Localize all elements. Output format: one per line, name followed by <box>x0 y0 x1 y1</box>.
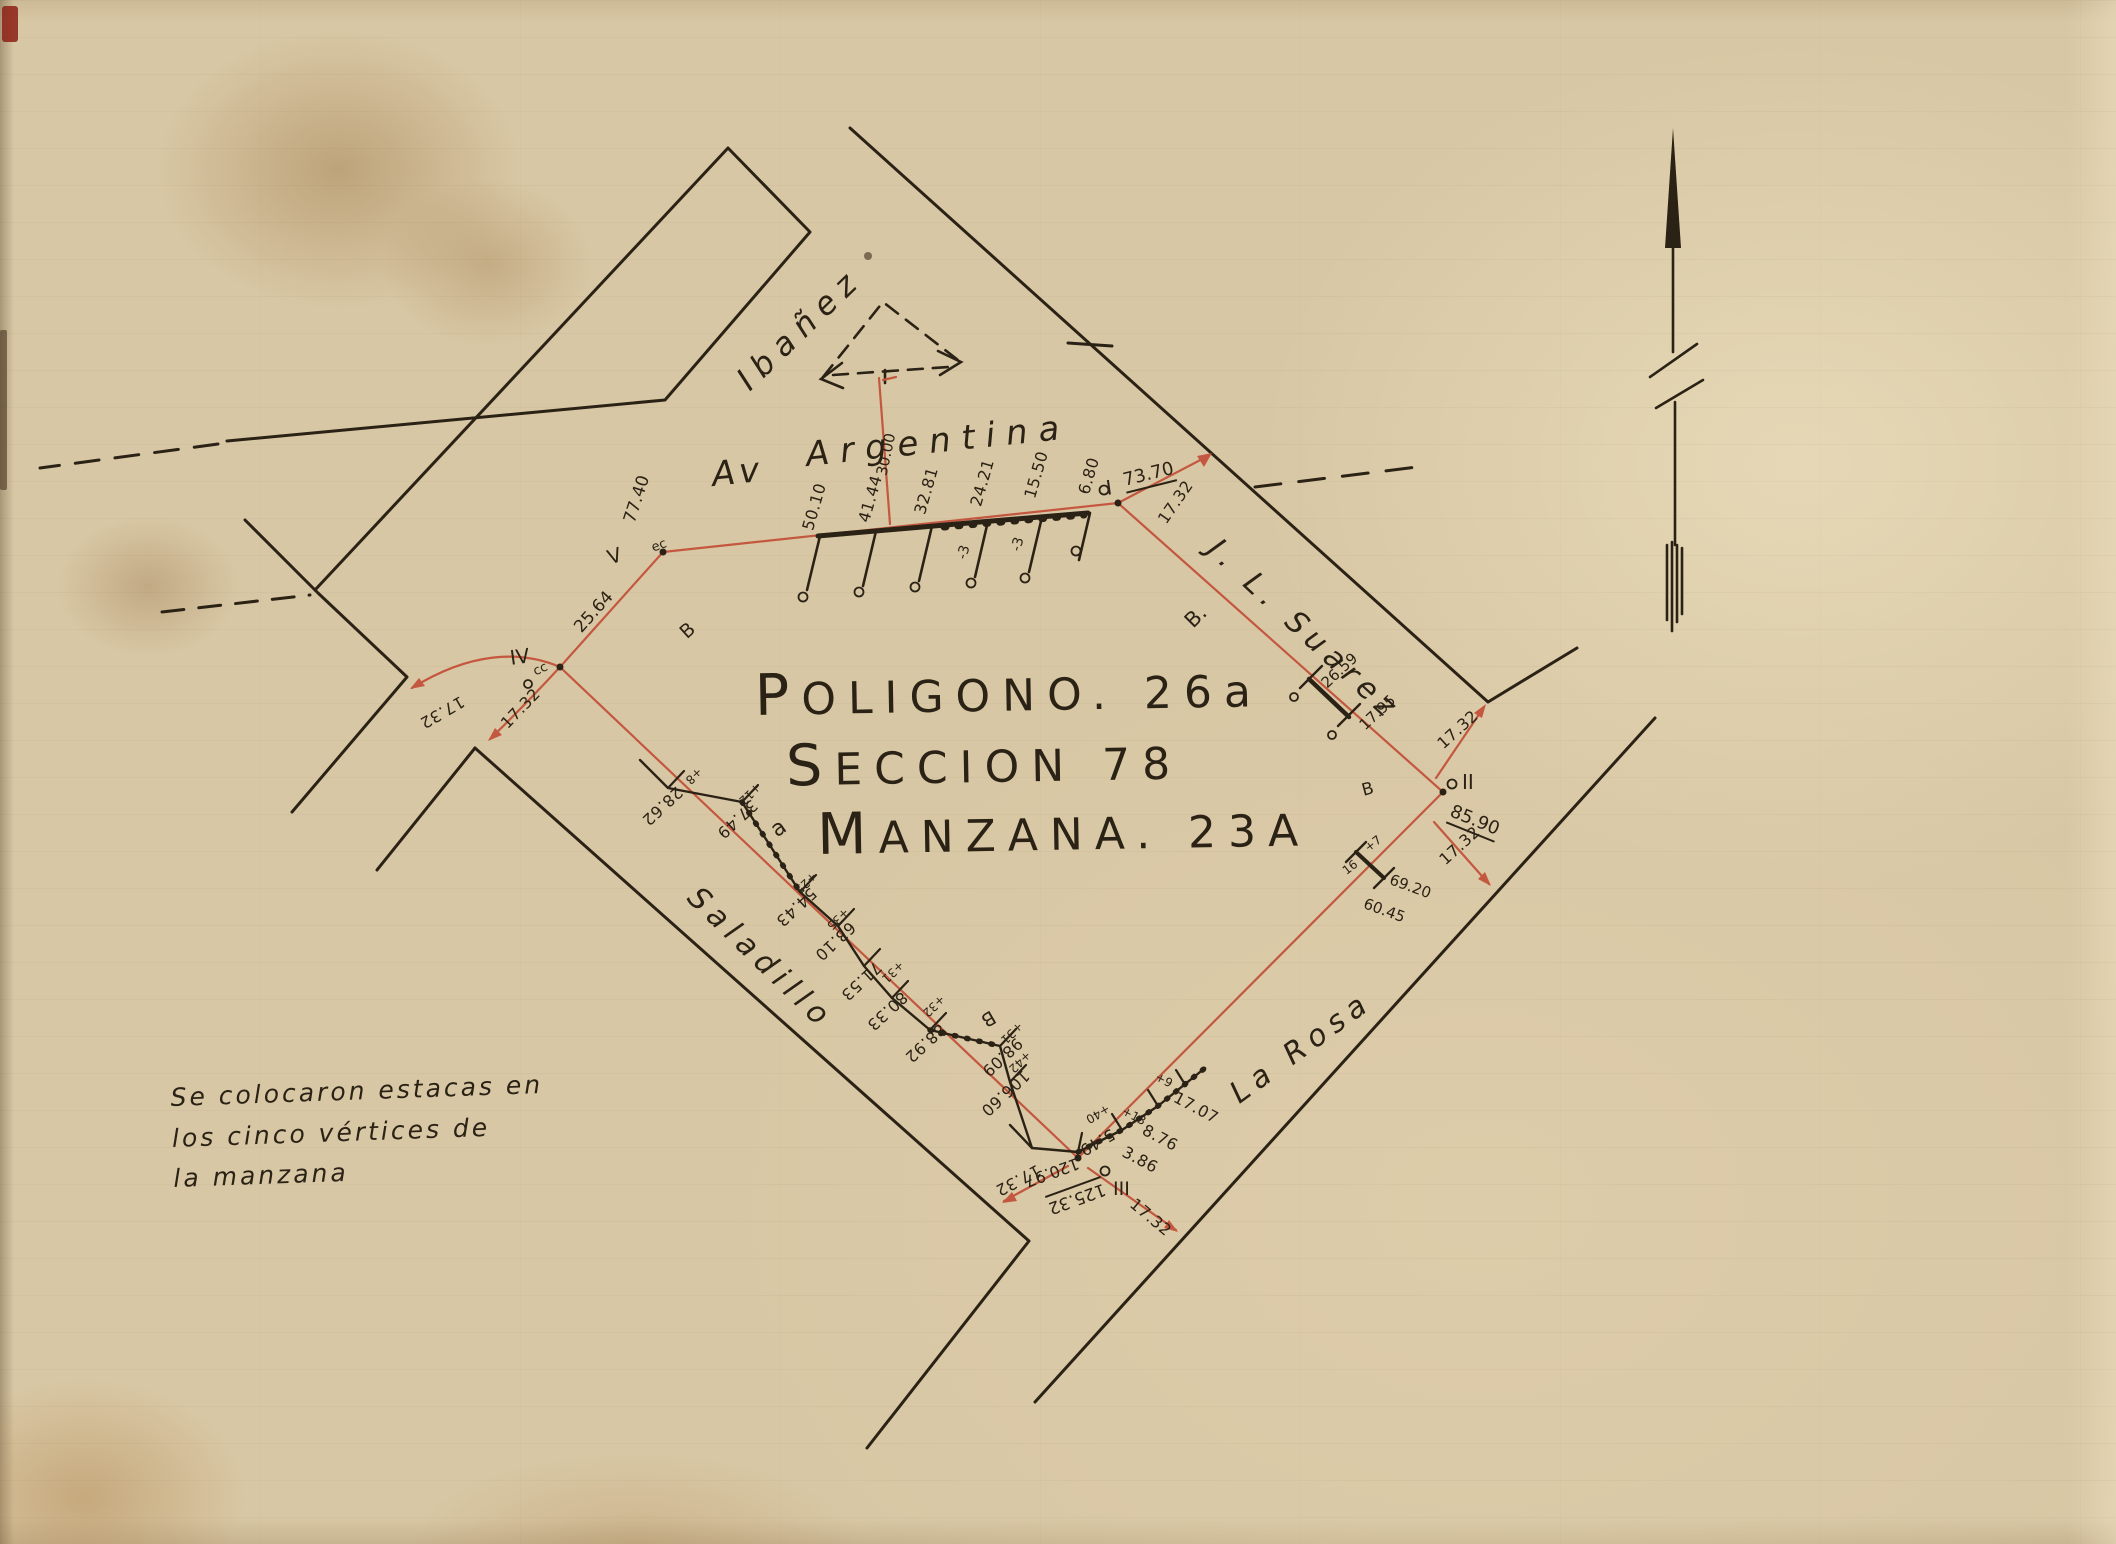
map-title: POLIGONO. 26a SECCION 78 MANZANA. 23A <box>754 658 1310 865</box>
street-cross-sw-b <box>377 748 475 870</box>
top-baseline-group <box>807 513 1090 590</box>
vertex-label-iv: IV <box>509 645 531 668</box>
tick <box>863 531 876 586</box>
vertex-dot <box>557 664 564 671</box>
title-seccion: SECCION 78 <box>786 732 1183 796</box>
tick <box>807 536 820 590</box>
tick <box>919 526 932 581</box>
station-circle <box>1448 780 1457 789</box>
surveyor-note: Se colocaron estacas en los cinco vértic… <box>170 1065 547 1199</box>
street-cross-sw-a <box>245 520 407 812</box>
street-nub <box>1068 343 1112 346</box>
vertex-label-ii: II <box>1462 772 1474 792</box>
street-dashes-sw <box>162 595 310 612</box>
dashed-triangle <box>821 302 961 388</box>
vertex-dot <box>1440 789 1447 796</box>
station-circle <box>1021 574 1030 583</box>
tick <box>1029 517 1042 572</box>
triangle-side <box>823 302 958 377</box>
vertex-dot <box>1115 500 1122 507</box>
survey-map-sheet: Ibañez Av Argentina J. L. Suarez Saladil… <box>0 0 2116 1544</box>
north-break-slash <box>1656 380 1703 408</box>
north-arrowhead <box>1665 128 1681 248</box>
street-label-av: Av <box>710 453 765 492</box>
station-circle <box>1328 731 1336 739</box>
arrowhead <box>410 678 425 689</box>
title-poligono: POLIGONO. 26a <box>754 659 1263 725</box>
station-circle <box>855 588 864 597</box>
tick <box>975 521 988 577</box>
tick <box>1176 1070 1186 1086</box>
station-circle <box>911 583 920 592</box>
station-circle <box>799 593 808 602</box>
station-circle <box>967 579 976 588</box>
triangle-base <box>833 367 948 375</box>
north-arrow-icon <box>1650 128 1703 631</box>
title-manzana: MANZANA. 23A <box>817 799 1311 865</box>
street-block-nw <box>227 148 810 590</box>
street-suarez-ne-edge <box>850 128 1577 702</box>
street-dashes-west <box>40 444 218 468</box>
street-dashes-east <box>1255 467 1417 487</box>
station-circle <box>1101 1167 1110 1176</box>
tick <box>1148 1090 1158 1106</box>
station-circle <box>1072 547 1081 556</box>
vertex-label-iii: III <box>1113 1180 1130 1199</box>
